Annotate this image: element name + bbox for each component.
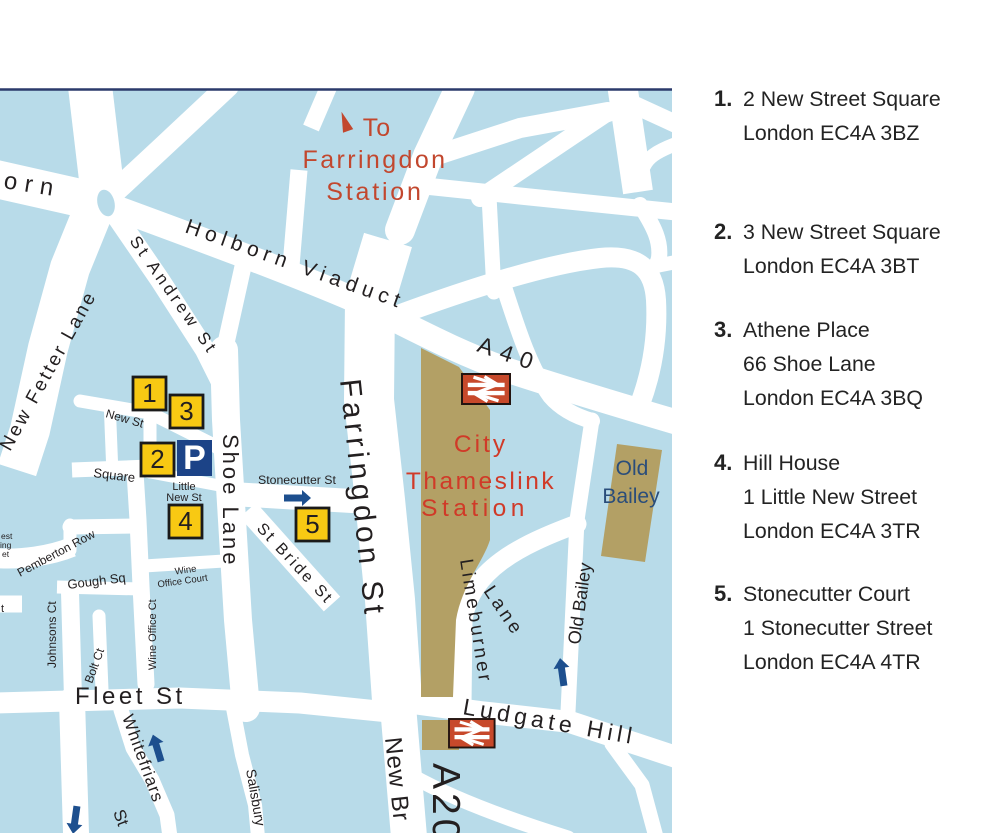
- svg-text:To: To: [363, 114, 391, 142]
- svg-text:et: et: [2, 549, 10, 559]
- svg-text:Johnsons Ct: Johnsons Ct: [45, 601, 59, 668]
- svg-text:3: 3: [179, 396, 193, 426]
- svg-text:Thameslink: Thameslink: [406, 468, 556, 495]
- svg-text:Station: Station: [326, 178, 423, 206]
- svg-text:1: 1: [142, 378, 156, 408]
- svg-text:Stonecutter St: Stonecutter St: [258, 473, 337, 487]
- svg-text:Old: Old: [616, 457, 649, 480]
- svg-text:Shoe Lane: Shoe Lane: [218, 434, 243, 567]
- svg-text:A201: A201: [424, 763, 467, 833]
- svg-text:Bailey: Bailey: [602, 485, 660, 508]
- svg-text:New St: New St: [166, 492, 201, 504]
- svg-text:Wine Office Ct: Wine Office Ct: [147, 599, 159, 670]
- svg-text:Farringdon: Farringdon: [303, 146, 448, 174]
- svg-text:4: 4: [178, 506, 192, 536]
- svg-text:t: t: [1, 603, 4, 615]
- svg-text:5: 5: [305, 509, 319, 539]
- svg-text:2: 2: [150, 444, 164, 474]
- svg-text:City: City: [454, 431, 508, 458]
- svg-text:Fleet St: Fleet St: [75, 683, 186, 710]
- svg-text:P: P: [183, 439, 206, 477]
- svg-text:Station: Station: [421, 495, 529, 522]
